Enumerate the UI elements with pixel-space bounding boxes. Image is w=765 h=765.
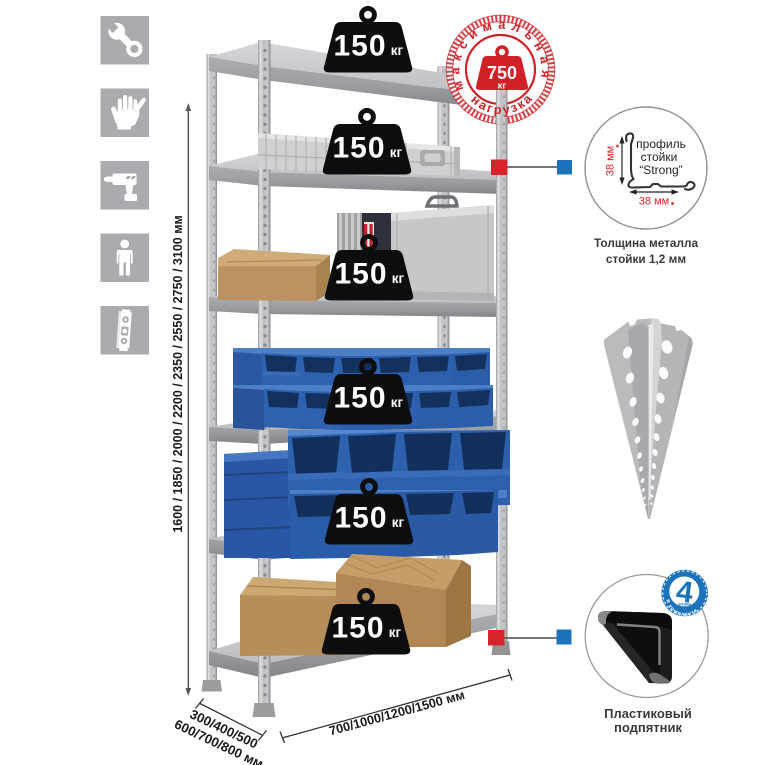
svg-text:стойки 1,2 мм: стойки 1,2 мм [606, 252, 686, 266]
svg-text:1600 / 1850 / 2000 / 2200 / 23: 1600 / 1850 / 2000 / 2200 / 2350 / 2550 … [171, 215, 185, 532]
svg-text:Толщина металла: Толщина металла [594, 236, 698, 250]
svg-text:кг: кг [498, 81, 507, 92]
svg-text:профиль: профиль [636, 137, 686, 151]
svg-text:38 мм: 38 мм [639, 196, 669, 208]
svg-text:штуки: штуки [678, 602, 691, 607]
svg-text:стойки: стойки [641, 150, 678, 164]
svg-text:Пластиковый: Пластиковый [604, 706, 692, 721]
svg-text:38 мм: 38 мм [605, 146, 617, 176]
svg-text:подпятник: подпятник [614, 720, 683, 735]
svg-text:“Strong”: “Strong” [639, 163, 682, 177]
